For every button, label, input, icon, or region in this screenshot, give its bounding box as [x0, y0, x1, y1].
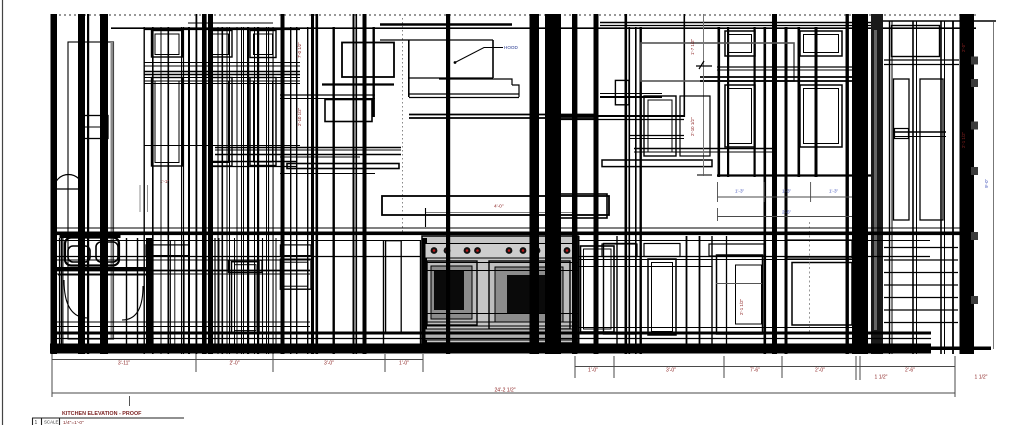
svg-text:4'-0": 4'-0" [494, 204, 504, 210]
svg-text:1'-3": 1'-3" [782, 189, 792, 194]
svg-text:2'-0": 2'-0" [961, 43, 966, 52]
svg-text:2'-0": 2'-0" [230, 361, 240, 367]
svg-text:1 1/2": 1 1/2" [975, 375, 988, 381]
svg-text:7'-0 1/2": 7'-0 1/2" [297, 42, 302, 58]
svg-text:3'-0": 3'-0" [666, 368, 676, 374]
svg-text:2'-1 1/2": 2'-1 1/2" [739, 298, 744, 315]
svg-text:2'-1 1/2": 2'-1 1/2" [961, 131, 966, 148]
svg-text:2'-6": 2'-6" [782, 210, 792, 215]
svg-text:3'-11": 3'-11" [118, 361, 131, 367]
svg-text:1 1/2": 1 1/2" [875, 375, 888, 381]
svg-text:SCALE: SCALE [44, 420, 58, 425]
svg-text:1'-0": 1'-0" [588, 368, 598, 374]
svg-text:24'-2 1/2": 24'-2 1/2" [494, 388, 515, 394]
svg-text:KITCHEN ELEVATION - PROOF: KITCHEN ELEVATION - PROOF [62, 411, 142, 417]
svg-text:1'-3": 1'-3" [829, 189, 839, 194]
svg-text:1/4"=1'-0": 1/4"=1'-0" [63, 420, 84, 425]
svg-text:HOOD: HOOD [504, 45, 518, 50]
svg-text:2'-0": 2'-0" [815, 368, 825, 374]
svg-text:2'-10 1/2": 2'-10 1/2" [690, 117, 695, 136]
svg-text:7'-6": 7'-6" [750, 368, 760, 374]
svg-text:1'-3": 1'-3" [735, 189, 745, 194]
svg-text:9'-0": 9'-0" [984, 178, 989, 188]
svg-text:2'-10 1/2": 2'-10 1/2" [297, 107, 302, 126]
svg-text:1'-0": 1'-0" [399, 361, 409, 367]
svg-text:2'-6": 2'-6" [905, 368, 915, 374]
svg-text:3'-0": 3'-0" [324, 361, 334, 367]
svg-text:1: 1 [35, 420, 38, 425]
svg-text:1'-7 1/2": 1'-7 1/2" [690, 38, 695, 55]
